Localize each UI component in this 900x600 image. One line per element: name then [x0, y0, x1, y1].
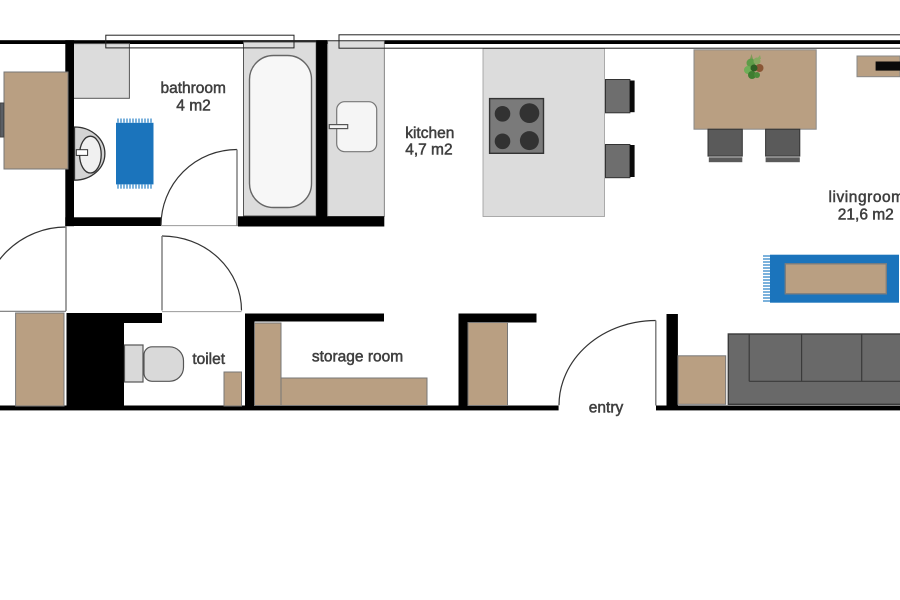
svg-text:21,6 m2: 21,6 m2 — [838, 207, 894, 224]
svg-text:livingroom: livingroom — [829, 189, 900, 206]
svg-text:entry: entry — [589, 400, 624, 417]
svg-text:4 m2: 4 m2 — [176, 98, 210, 115]
svg-text:storage room: storage room — [312, 349, 403, 366]
svg-text:4,7 m2: 4,7 m2 — [405, 141, 452, 158]
svg-text:kitchen: kitchen — [405, 125, 454, 142]
svg-text:bathroom: bathroom — [160, 80, 225, 97]
svg-text:toilet: toilet — [192, 351, 225, 368]
